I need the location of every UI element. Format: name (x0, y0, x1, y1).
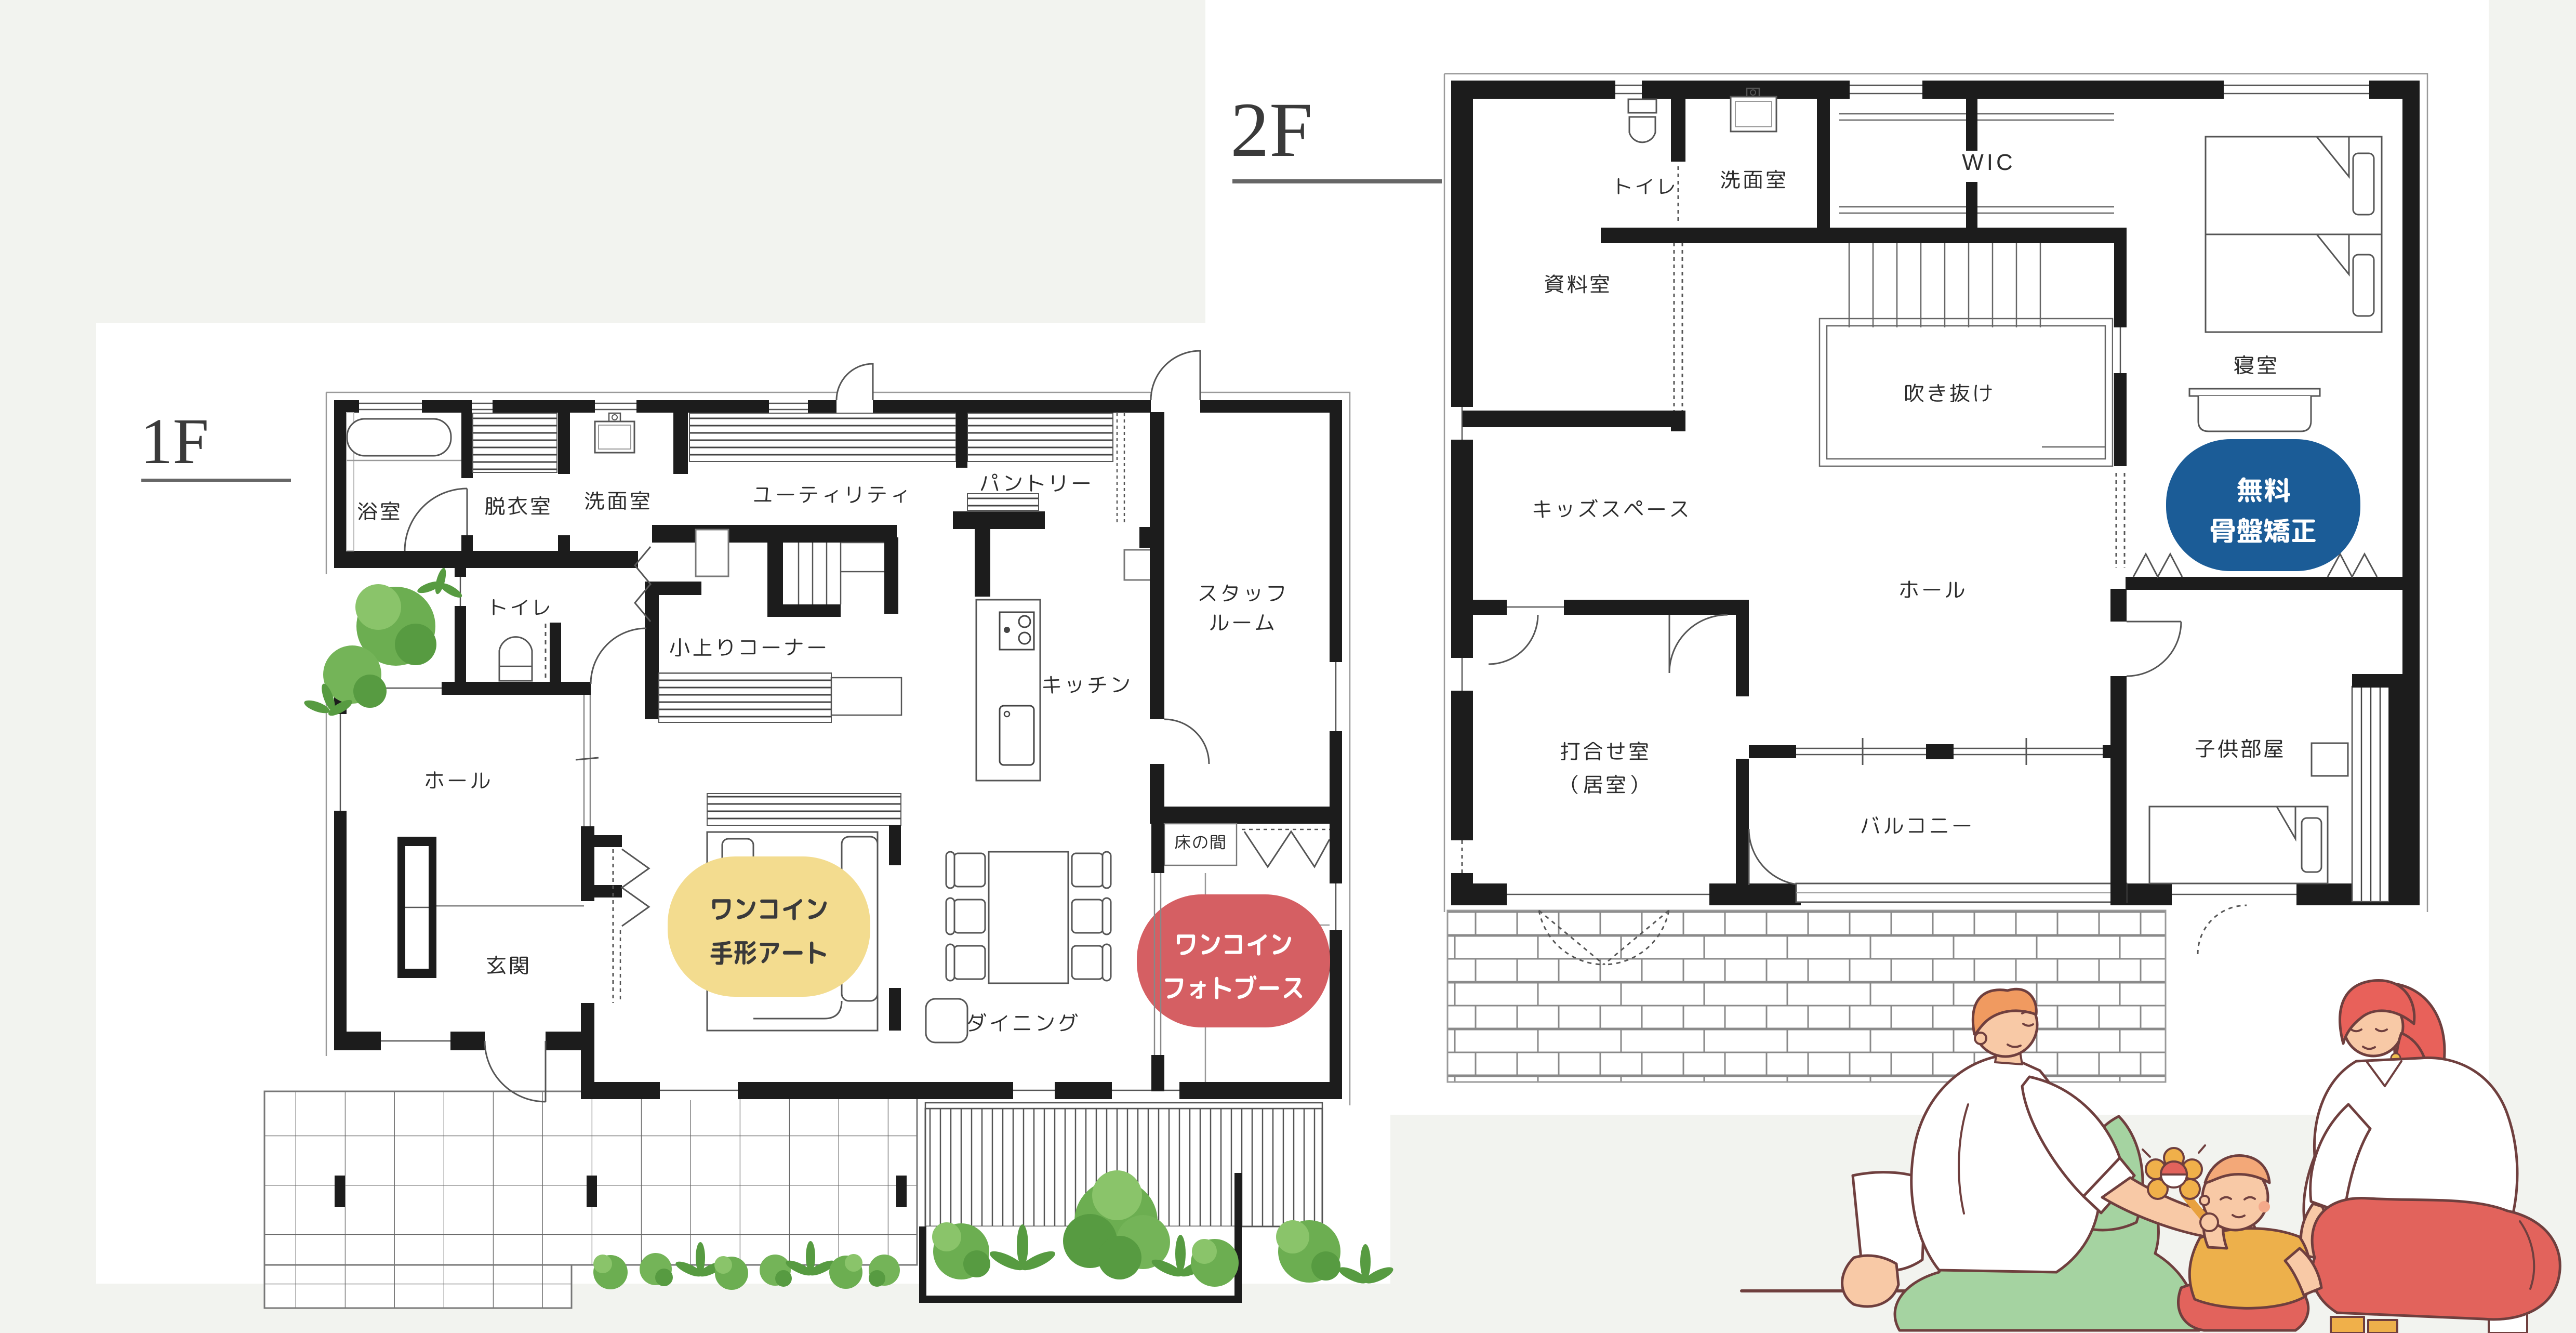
svg-text:2F: 2F (1230, 87, 1312, 173)
svg-text:1F: 1F (140, 406, 209, 478)
svg-text:WIC: WIC (1962, 150, 2016, 175)
